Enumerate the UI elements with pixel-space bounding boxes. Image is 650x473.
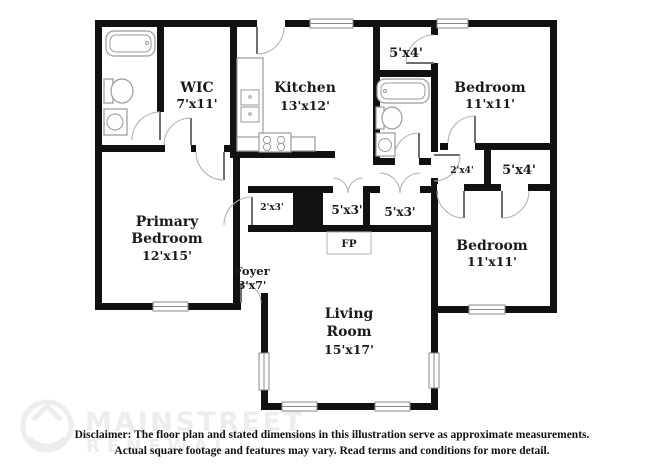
bathroom2-fixtures <box>376 79 429 156</box>
kitchen-dims: 13'x12' <box>280 98 330 113</box>
floor-plan-drawing: MAINSTREET RENEWAL <box>0 0 650 473</box>
fireplace-chase <box>293 186 323 232</box>
primary-name-line2: Bedroom <box>131 231 203 247</box>
floor-plan-page: MAINSTREET RENEWAL <box>0 0 650 473</box>
living-name-line1: Living <box>325 306 374 322</box>
bedroom-bottom-name: Bedroom <box>456 238 528 254</box>
closet-5x3-right-label: 5'x3' <box>384 205 415 219</box>
bathroom1-fixtures <box>104 31 155 135</box>
watermark-arrow-icon <box>29 438 65 446</box>
closet-2x3-label: 2'x3' <box>260 203 283 213</box>
closet-2x4-label: 2'x4' <box>450 166 473 176</box>
watermark-logo <box>23 402 71 450</box>
living-dims: 15'x17' <box>324 342 374 357</box>
wic-dims: 7'x11' <box>176 96 217 111</box>
foyer-dims: 3'x7' <box>238 279 267 292</box>
wic-name: WIC <box>179 80 213 96</box>
primary-dims: 12'x15' <box>142 248 192 263</box>
closet-5x3-left-label: 5'x3' <box>331 203 362 217</box>
watermark-house-icon <box>33 406 61 420</box>
bedroom-bottom-dims: 11'x11' <box>467 254 517 269</box>
foyer-name: Foyer <box>234 264 270 278</box>
primary-name-line1: Primary <box>136 214 199 230</box>
bedroom-top-name: Bedroom <box>454 80 526 96</box>
bedroom-top-dims: 11'x11' <box>465 96 515 111</box>
disclaimer-line2: Actual square footage and features may v… <box>114 445 549 457</box>
fireplace-label: FP <box>341 238 356 250</box>
closet-top-label: 5'x4' <box>389 46 423 61</box>
disclaimer-line1: Disclaimer: The floor plan and stated di… <box>75 429 590 441</box>
kitchen-name: Kitchen <box>274 80 336 96</box>
closet-5x4-label: 5'x4' <box>502 163 536 178</box>
living-name-line2: Room <box>326 324 371 340</box>
